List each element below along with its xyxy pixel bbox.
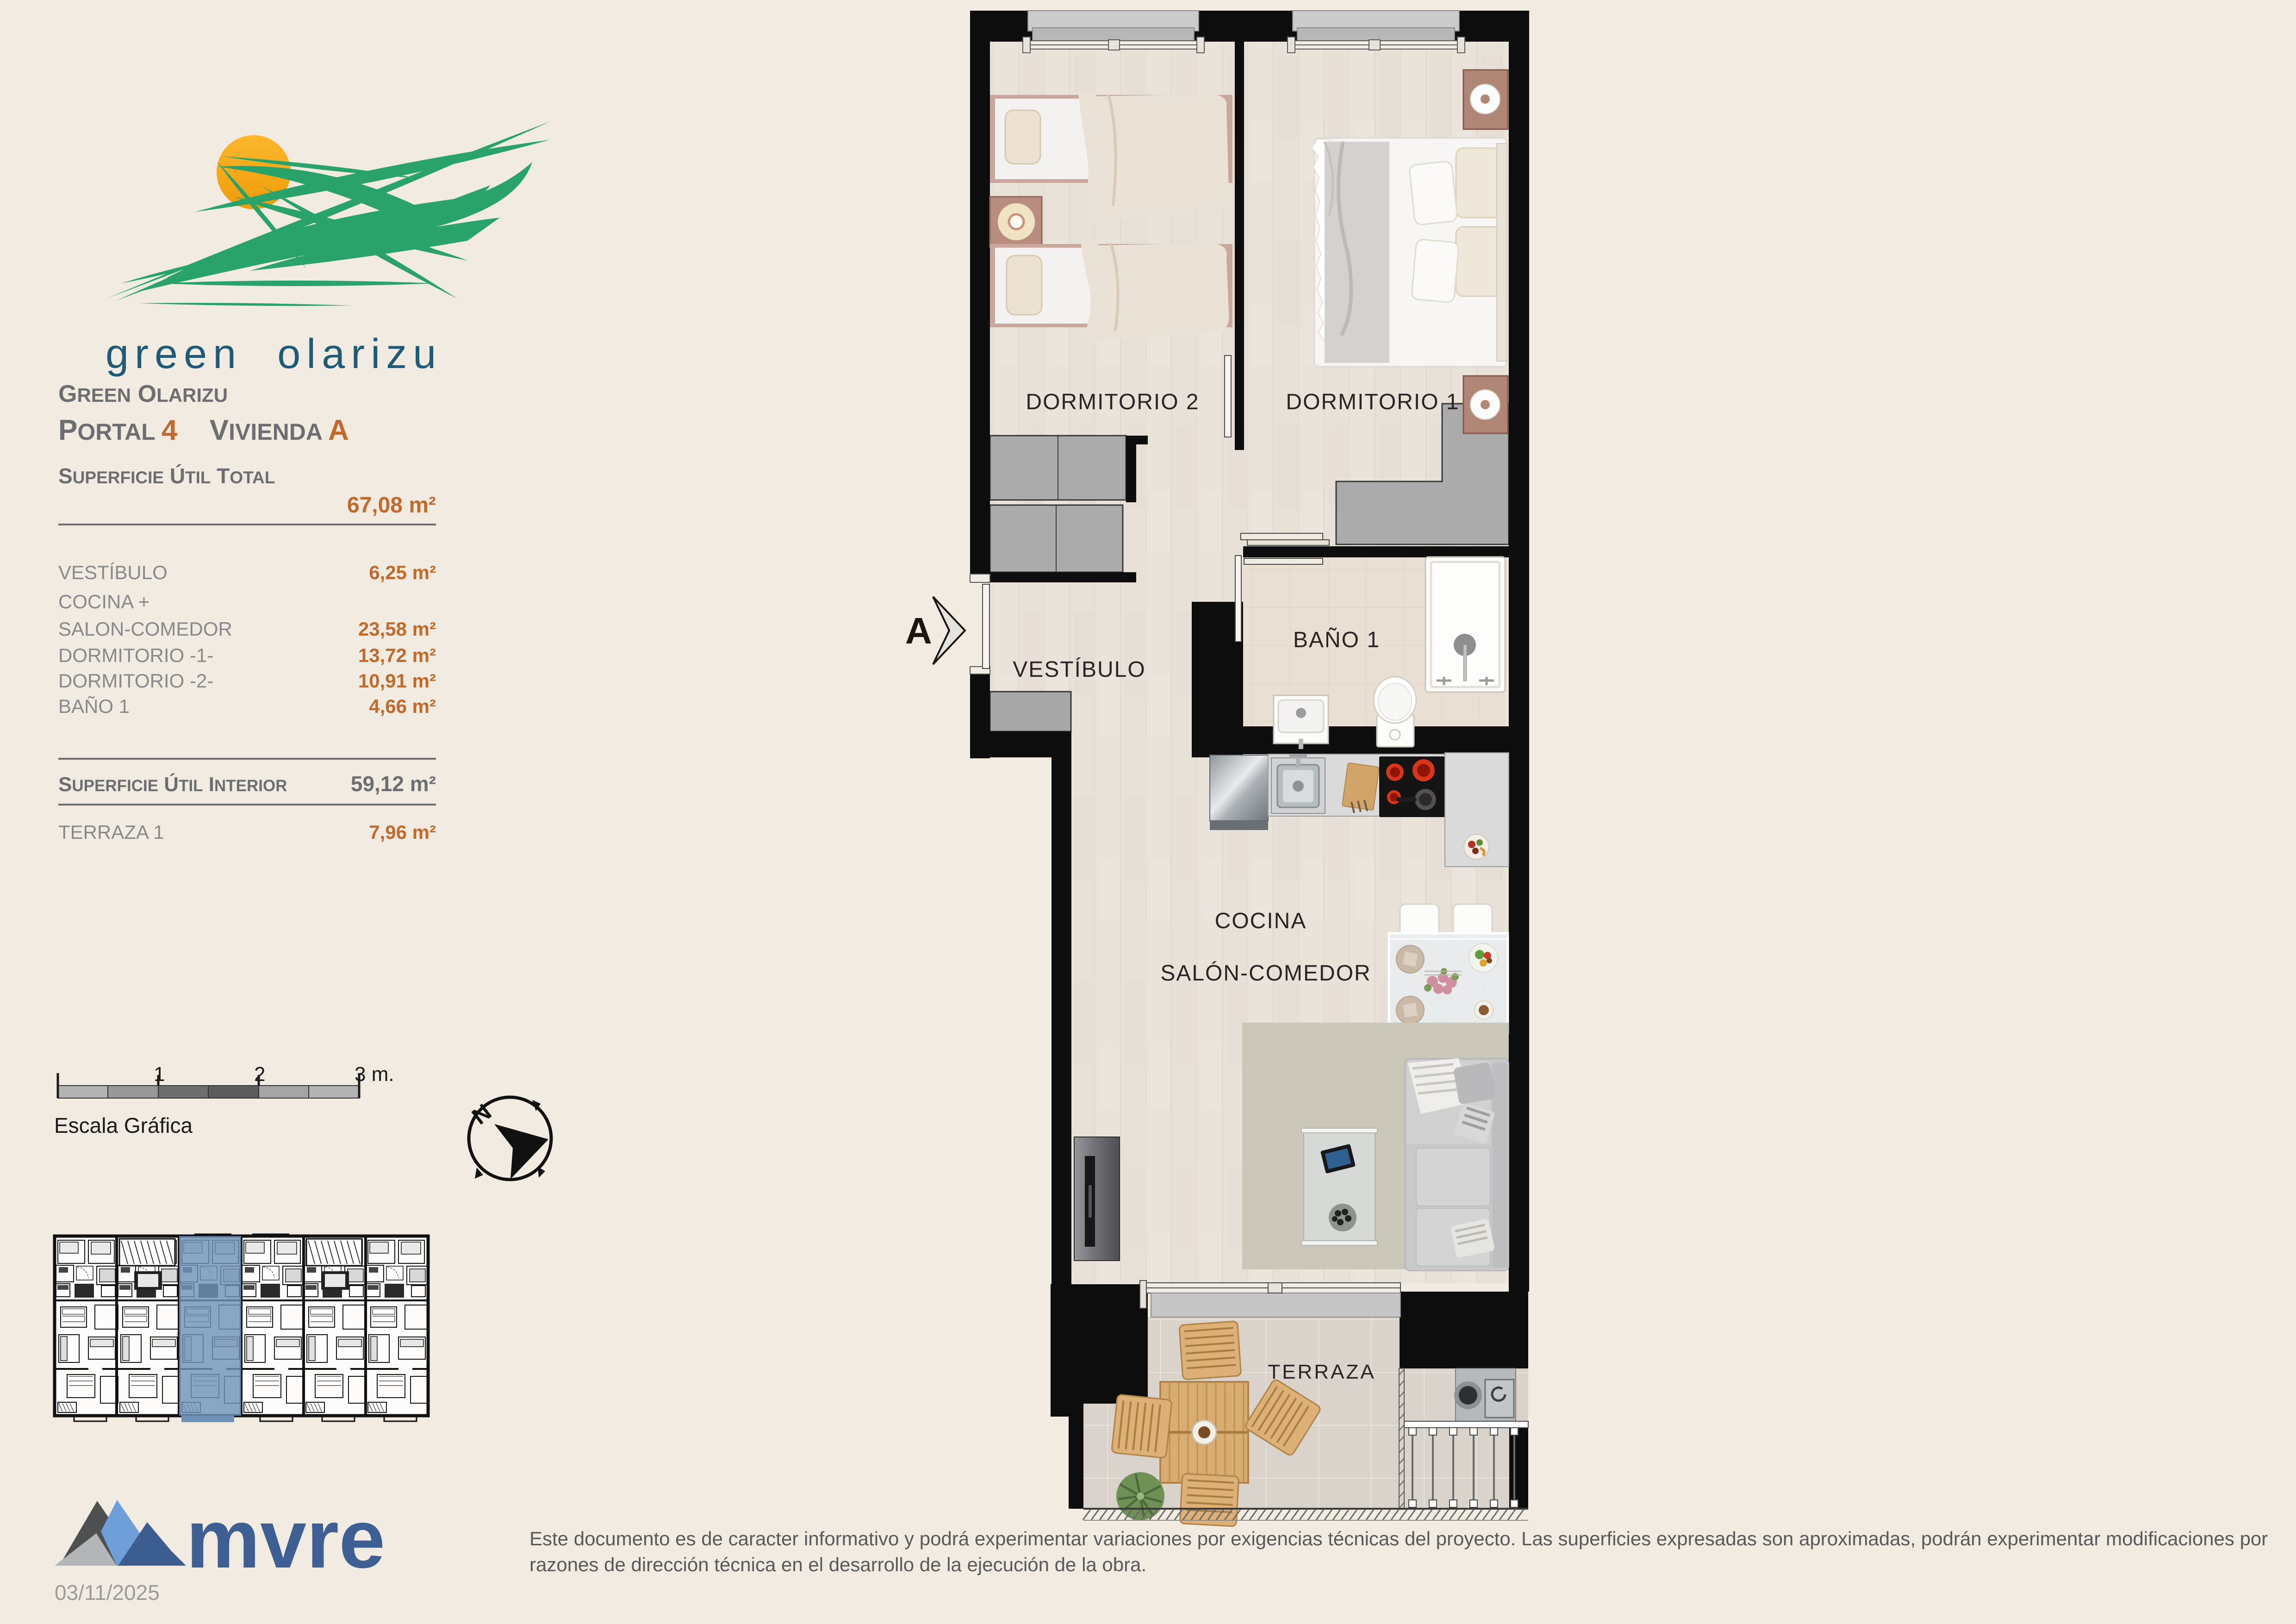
svg-text:1: 1: [154, 1063, 165, 1086]
svg-text:DORMITORIO 2: DORMITORIO 2: [1026, 390, 1199, 414]
svg-text:TERRAZA: TERRAZA: [1268, 1361, 1375, 1383]
svg-text:SALON-COMEDOR: SALON-COMEDOR: [58, 618, 232, 640]
svg-text:PORTAL 4 VIVIENDA A: PORTAL 4 VIVIENDA A: [58, 414, 349, 446]
svg-text:VESTÍBULO: VESTÍBULO: [58, 562, 168, 583]
svg-text:VESTÍBULO: VESTÍBULO: [1013, 657, 1145, 682]
svg-text:DORMITORIO -1-: DORMITORIO -1-: [58, 644, 213, 666]
svg-text:COCINA +: COCINA +: [58, 591, 149, 612]
svg-text:2: 2: [254, 1063, 265, 1086]
svg-text:COCINA: COCINA: [1215, 909, 1307, 933]
svg-text:DORMITORIO 1: DORMITORIO 1: [1286, 390, 1459, 414]
svg-text:7,96 m²: 7,96 m²: [369, 821, 436, 843]
svg-text:Este documento es de caracter: Este documento es de caracter informativ…: [529, 1528, 2268, 1549]
svg-text:23,58 m²: 23,58 m²: [358, 618, 436, 640]
svg-text:03/11/2025: 03/11/2025: [55, 1580, 160, 1605]
svg-text:10,91 m²: 10,91 m²: [358, 670, 436, 692]
svg-text:green olarizu: green olarizu: [106, 331, 442, 377]
svg-text:59,12 m²: 59,12 m²: [351, 772, 436, 796]
svg-text:BAÑO 1: BAÑO 1: [1293, 627, 1380, 652]
svg-text:4,66 m²: 4,66 m²: [369, 695, 436, 717]
svg-text:BAÑO 1: BAÑO 1: [58, 695, 130, 717]
svg-text:GREEN OLARIZU: GREEN OLARIZU: [58, 381, 228, 407]
svg-text:DORMITORIO -2-: DORMITORIO -2-: [58, 670, 213, 692]
svg-text:A: A: [905, 610, 932, 651]
svg-text:67,08 m²: 67,08 m²: [347, 493, 436, 518]
svg-text:3 m.: 3 m.: [355, 1063, 394, 1086]
svg-text:13,72 m²: 13,72 m²: [358, 644, 436, 666]
svg-text:mvre: mvre: [186, 1493, 385, 1586]
svg-text:razones de dirección técnica e: razones de dirección técnica en el desar…: [529, 1554, 1146, 1575]
svg-text:TERRAZA 1: TERRAZA 1: [58, 821, 164, 843]
svg-text:6,25 m²: 6,25 m²: [369, 562, 436, 583]
svg-text:SALÓN-COMEDOR: SALÓN-COMEDOR: [1160, 961, 1371, 986]
svg-text:Escala Gráfica: Escala Gráfica: [54, 1113, 193, 1137]
